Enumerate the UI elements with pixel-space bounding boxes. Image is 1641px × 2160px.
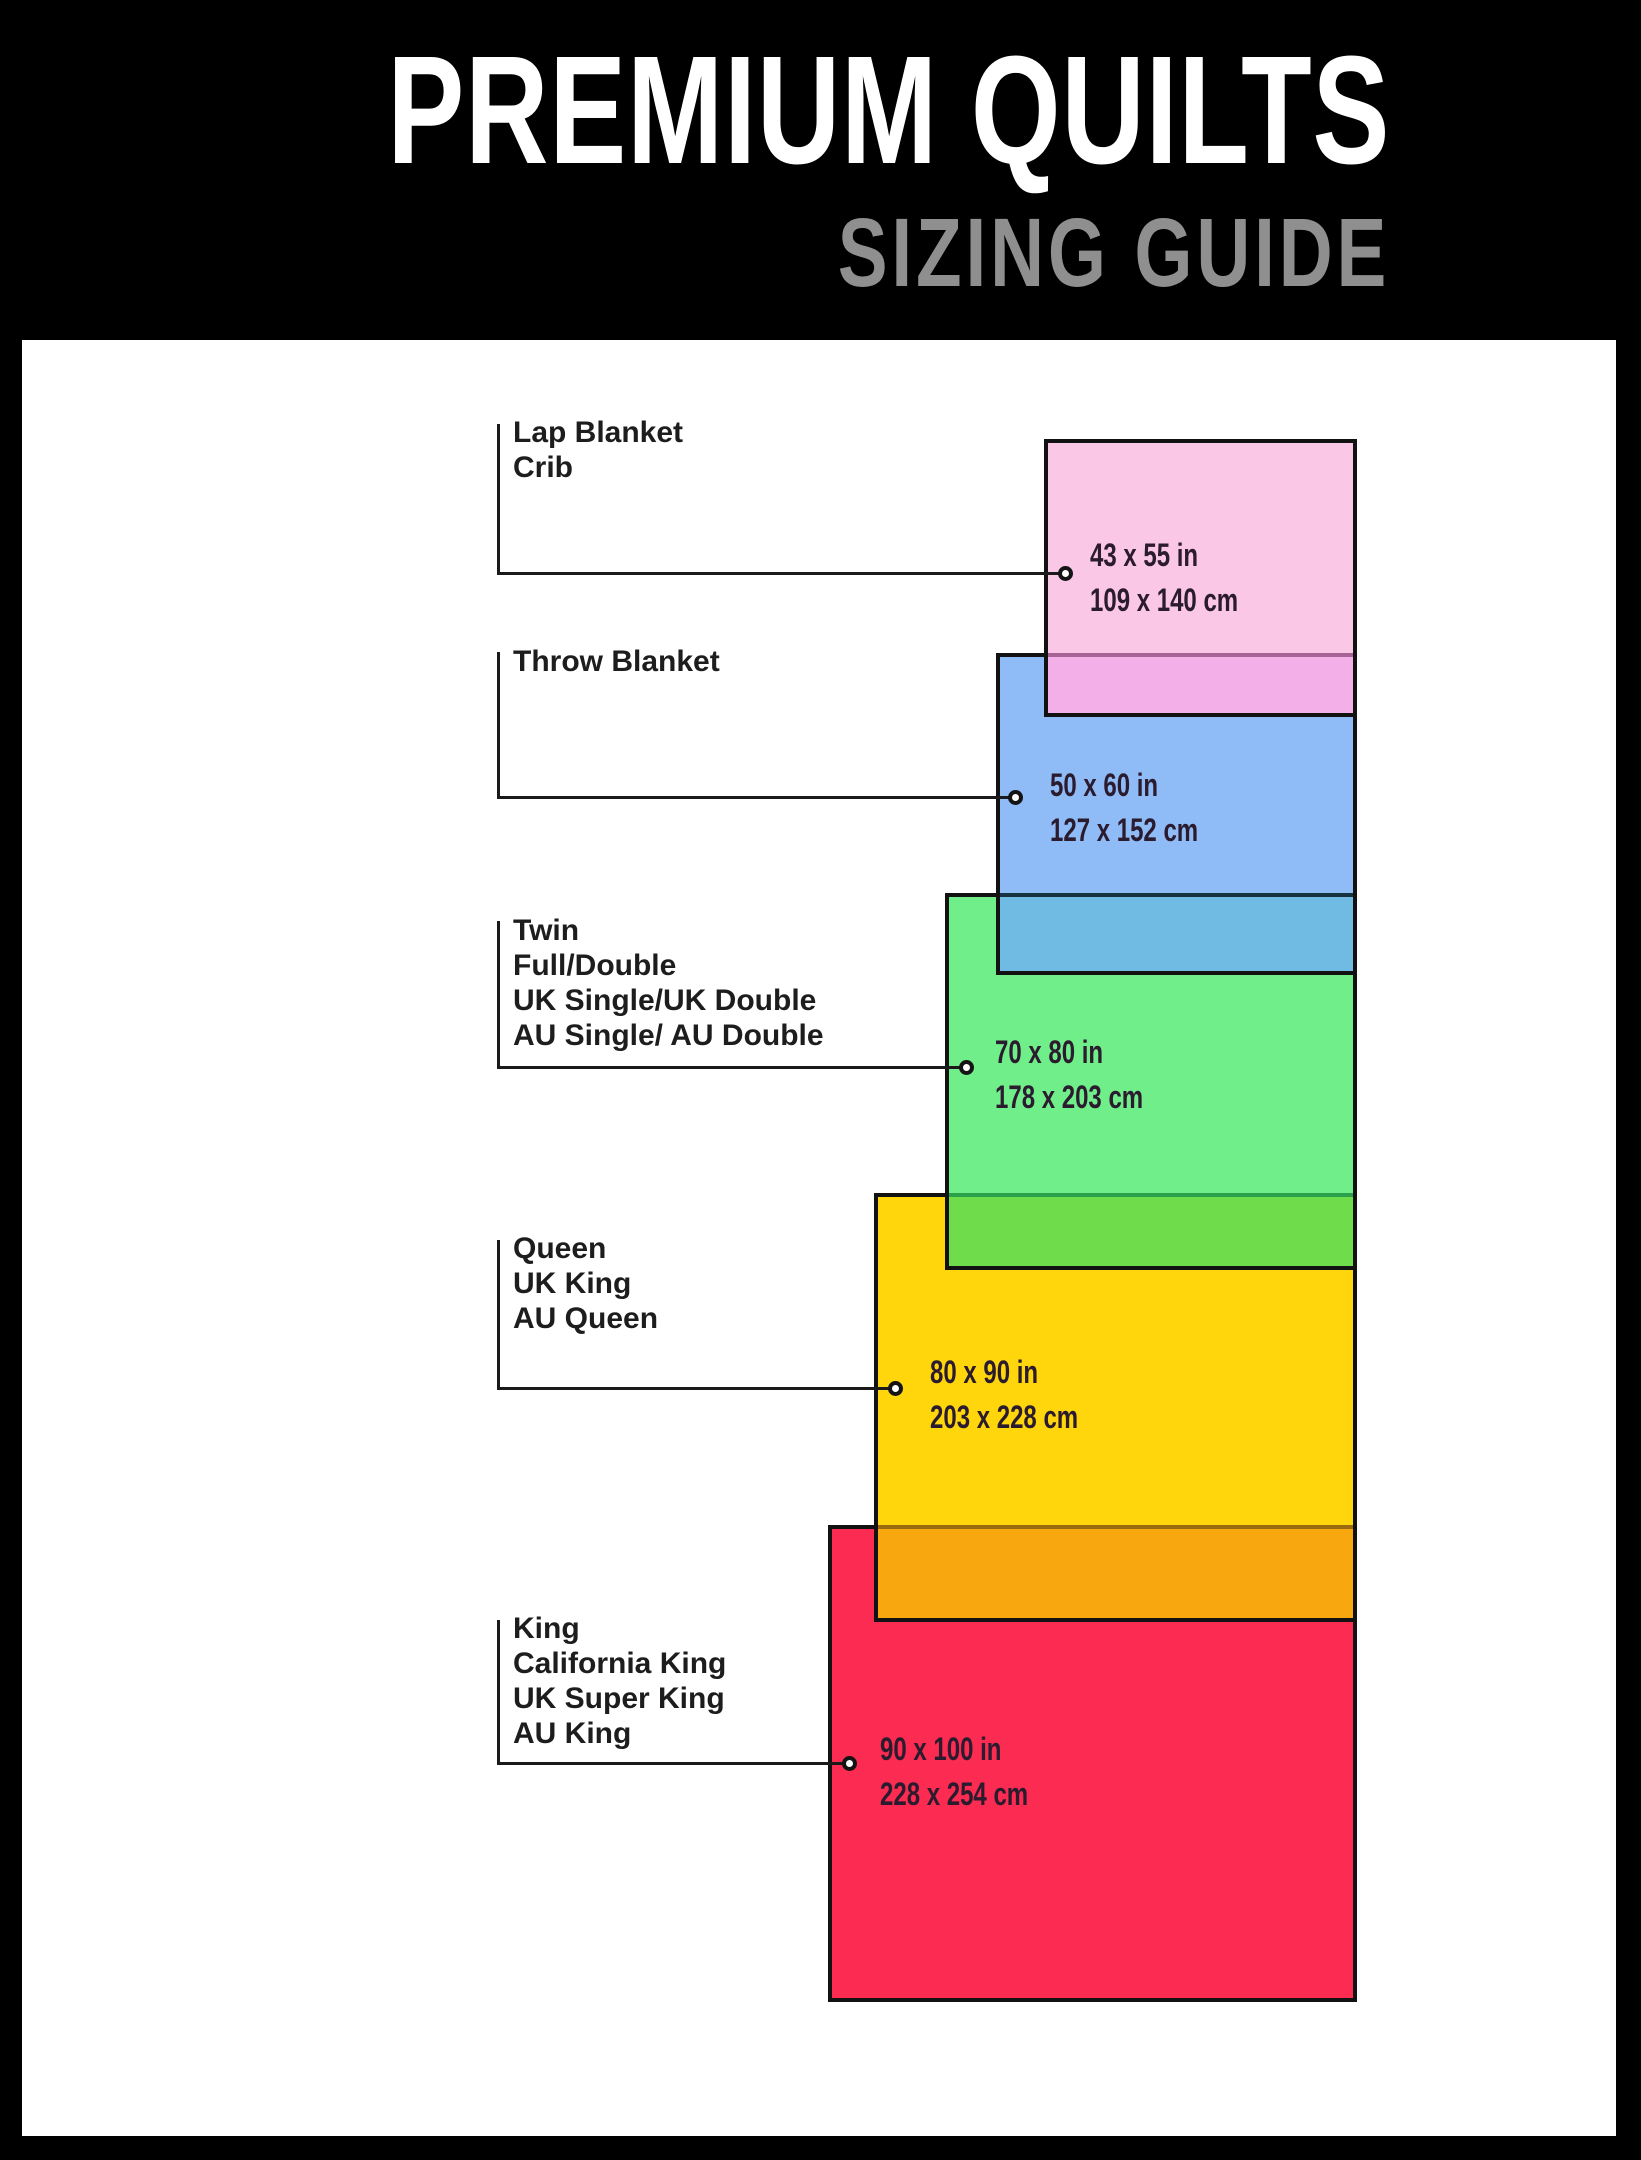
page-title: PREMIUM QUILTS [387,30,1390,192]
connector-vline [497,921,500,1068]
label-line: California King [513,1646,726,1681]
connector-vline [497,1620,500,1764]
connector-hline [497,796,1016,799]
connector-vline [497,424,500,574]
connector-hline [497,572,1066,575]
label-queen: Queen UK King AU Queen [513,1231,658,1336]
connector-dot-icon [959,1060,974,1075]
dims-inches: 80 x 90 in [930,1350,1078,1395]
label-line: Twin [513,913,824,948]
connector-dot-icon [1058,566,1073,581]
label-line: Crib [513,450,683,485]
infographic-page: PREMIUM QUILTS SIZING GUIDE Lap Blanket … [0,0,1641,2160]
dims-cm: 178 x 203 cm [995,1075,1143,1120]
label-line: Lap Blanket [513,415,683,450]
overlap-band-queen-over-king [878,1525,1353,1618]
dims-inches: 43 x 55 in [1090,533,1238,578]
overlap-band-throw-over-twin [1000,893,1353,971]
label-line: UK Single/UK Double [513,983,824,1018]
page-subtitle: SIZING GUIDE [360,204,1390,301]
connector-hline [497,1066,967,1069]
label-lap-blanket-crib: Lap Blanket Crib [513,415,683,485]
dims-queen: 80 x 90 in 203 x 228 cm [930,1350,1078,1440]
label-king: King California King UK Super King AU Ki… [513,1611,726,1751]
label-line: AU Queen [513,1301,658,1336]
dims-lap-blanket-crib: 43 x 55 in 109 x 140 cm [1090,533,1238,623]
connector-vline [497,1240,500,1389]
connector-vline [497,652,500,798]
header: PREMIUM QUILTS SIZING GUIDE [53,30,1390,301]
connector-dot-icon [842,1756,857,1771]
connector-hline [497,1387,896,1390]
connector-dot-icon [888,1381,903,1396]
overlap-band-twin-over-queen [949,1193,1353,1266]
dims-cm: 228 x 254 cm [880,1772,1028,1817]
label-twin-full-double: Twin Full/Double UK Single/UK Double AU … [513,913,824,1053]
dims-cm: 127 x 152 cm [1050,808,1198,853]
label-line: Queen [513,1231,658,1266]
dims-cm: 203 x 228 cm [930,1395,1078,1440]
dims-twin-full-double: 70 x 80 in 178 x 203 cm [995,1030,1143,1120]
dims-king: 90 x 100 in 228 x 254 cm [880,1727,1028,1817]
overlap-band-lap-over-throw [1048,653,1353,713]
label-throw-blanket: Throw Blanket [513,644,720,679]
label-line: AU Single/ AU Double [513,1018,824,1053]
dims-throw-blanket: 50 x 60 in 127 x 152 cm [1050,763,1198,853]
connector-hline [497,1762,850,1765]
dims-inches: 90 x 100 in [880,1727,1028,1772]
label-line: UK King [513,1266,658,1301]
connector-dot-icon [1008,790,1023,805]
label-line: King [513,1611,726,1646]
dims-inches: 50 x 60 in [1050,763,1198,808]
diagram-panel [22,340,1616,2136]
label-line: Full/Double [513,948,824,983]
label-line: AU King [513,1716,726,1751]
label-line: UK Super King [513,1681,726,1716]
label-line: Throw Blanket [513,644,720,679]
dims-cm: 109 x 140 cm [1090,578,1238,623]
dims-inches: 70 x 80 in [995,1030,1143,1075]
